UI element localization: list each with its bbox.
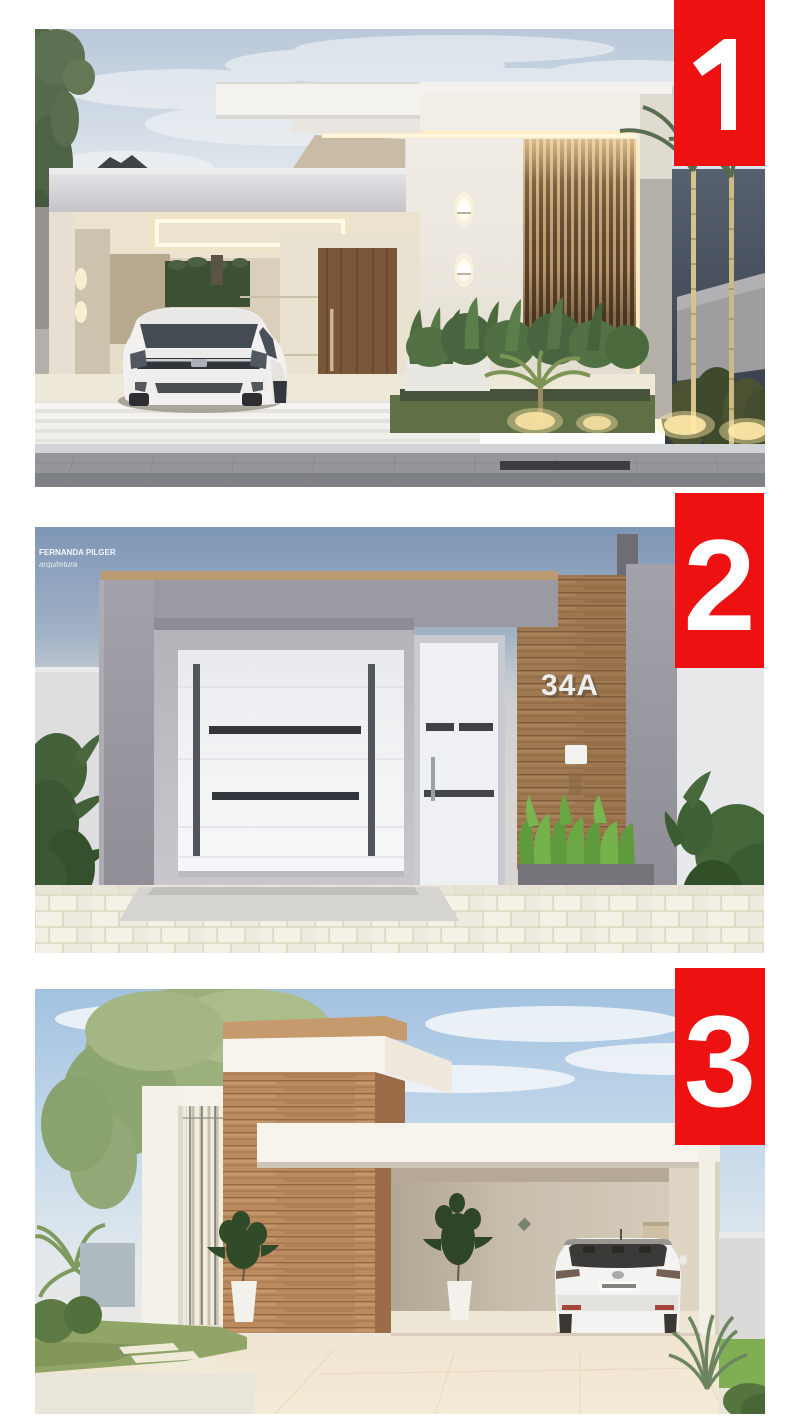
svg-text:FERNANDA PILGER: FERNANDA PILGER bbox=[39, 548, 116, 557]
svg-text:arquitetura: arquitetura bbox=[39, 560, 78, 569]
svg-text:34A: 34A bbox=[541, 669, 599, 702]
